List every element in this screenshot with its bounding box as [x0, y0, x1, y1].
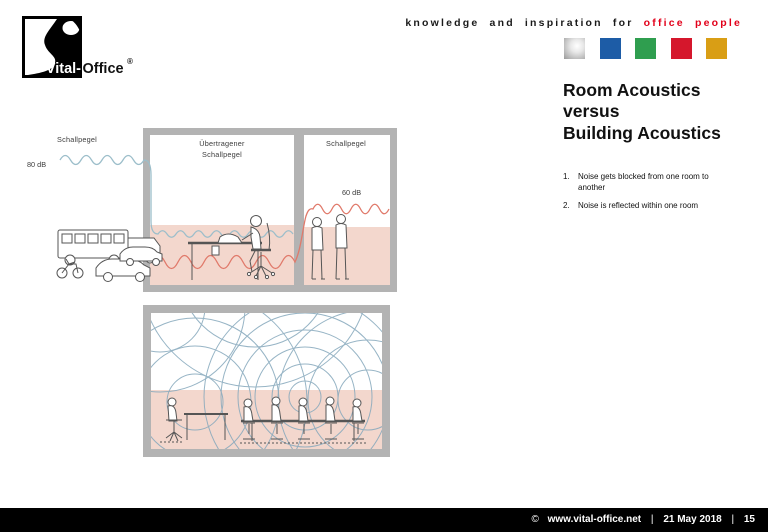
- list-item-number: 1.: [563, 171, 578, 193]
- brand-square-silver: [564, 38, 585, 59]
- tagline-black: knowledge and inspiration for: [405, 17, 633, 29]
- tagline: knowledge and inspiration for office peo…: [380, 17, 742, 29]
- logo-text-office: Office: [83, 61, 124, 77]
- logo-text-vital: Vital-: [46, 61, 81, 77]
- footer-date: 21 May 2018: [663, 508, 721, 532]
- footer-bar: © www.vital-office.net | 21 May 2018 | 1…: [0, 508, 768, 532]
- brand-square-blue: [600, 38, 621, 59]
- copyright-symbol: ©: [531, 508, 538, 532]
- title-line-3: Building Acoustics: [563, 123, 763, 144]
- list-item-text: Noise gets blocked from one room to anot…: [578, 171, 730, 193]
- footer-separator: |: [651, 508, 654, 532]
- vital-office-logo: Vital- Office ®: [22, 12, 157, 82]
- footer-url[interactable]: www.vital-office.net: [548, 508, 642, 532]
- room-floor-zone: [151, 390, 382, 449]
- title-line-2: versus: [563, 101, 763, 122]
- slide-title: Room Acoustics versus Building Acoustics: [563, 80, 763, 144]
- brand-square-red: [671, 38, 692, 59]
- list-item-number: 2.: [563, 200, 578, 211]
- numbered-list: 1. Noise gets blocked from one room to a…: [563, 171, 758, 219]
- brand-square-gold: [706, 38, 727, 59]
- presentation-slide: Vital- Office ® knowledge and inspiratio…: [0, 0, 768, 532]
- list-item-text: Noise is reflected within one room: [578, 200, 730, 211]
- traffic-illustration: [57, 230, 162, 282]
- room2-level-label: 60 dB: [342, 188, 361, 197]
- tagline-red: office people: [644, 17, 742, 29]
- outside-sound-label: Schallpegel: [57, 135, 97, 144]
- list-item: 1. Noise gets blocked from one room to a…: [563, 171, 758, 193]
- logo-registered-mark: ®: [127, 57, 133, 66]
- brand-square-green: [635, 38, 656, 59]
- title-line-1: Room Acoustics: [563, 80, 763, 101]
- brand-color-squares: [564, 38, 727, 59]
- room2-label: Schallpegel: [326, 139, 366, 148]
- footer-separator: |: [731, 508, 734, 532]
- list-item: 2. Noise is reflected within one room: [563, 200, 758, 211]
- building-acoustics-diagram: Schallpegel 80 dB Übertragener Schallpeg…: [20, 122, 410, 294]
- room-acoustics-diagram: [140, 302, 395, 460]
- room1-label-line1: Übertragener: [199, 139, 245, 148]
- room1-label-line2: Schallpegel: [202, 150, 242, 159]
- outside-level-label: 80 dB: [27, 160, 46, 169]
- footer-page-number: 15: [744, 508, 755, 532]
